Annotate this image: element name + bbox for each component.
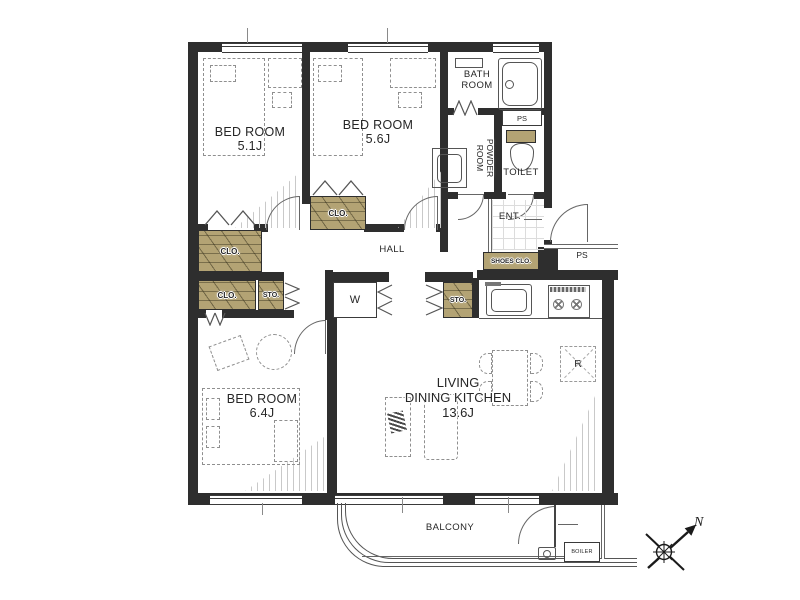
washer-space: W (333, 282, 377, 318)
stool (272, 92, 292, 108)
bifold-door-icon (425, 284, 443, 316)
entrance-tile-floor (492, 200, 544, 250)
desk (268, 58, 302, 88)
balcony-drain-box (538, 547, 556, 560)
room-label-powder: POWDER ROOM (466, 130, 494, 186)
wall (333, 272, 389, 282)
room-label-bedroom-large: BED ROOM 6.4J (212, 392, 312, 421)
wall (425, 272, 473, 282)
shoes-closet-label: SHOES CLO. (491, 258, 531, 265)
wall (494, 112, 502, 194)
bifold-door-icon (284, 282, 300, 310)
door-arc (458, 194, 484, 220)
compass-north-label: N (693, 515, 704, 530)
room-label-bath: BATH ROOM (456, 70, 498, 92)
washbasin (432, 148, 467, 188)
closet-box: CLO. (310, 196, 366, 230)
wall (325, 270, 333, 320)
boiler-label: BOILER (571, 549, 592, 555)
room-size: 6.4J (212, 406, 312, 420)
room-name: BED ROOM (200, 125, 300, 139)
bifold-door-icon (204, 312, 226, 326)
storage-box: STO. (443, 282, 473, 318)
burner-icon (553, 299, 564, 310)
balcony-partition (554, 505, 556, 547)
drain-circle (543, 550, 551, 558)
floor-plan: CLO. CLO. CLO. STO. STO. SHOES CLO. W (0, 0, 800, 600)
window (348, 43, 428, 53)
bath-counter (455, 58, 483, 68)
chair (479, 353, 492, 374)
closet-label: CLO. (220, 247, 239, 256)
bifold-door-icon (377, 284, 393, 316)
desk (390, 58, 436, 88)
room-size: 13.6J (382, 406, 534, 421)
door-arc (404, 196, 438, 230)
wall (196, 272, 284, 280)
boiler-box: BOILER (564, 542, 600, 562)
chair (530, 353, 543, 374)
wall (302, 52, 310, 204)
storage-box: STO. (258, 280, 284, 310)
closet-label: CLO. (217, 291, 236, 300)
corridor-edge-line (544, 244, 618, 249)
room-size: 5.1J (200, 139, 300, 153)
room-label-bedroom-small: BED ROOM 5.1J (200, 125, 300, 154)
room-label-toilet: TOILET (498, 168, 544, 179)
room-label-ldk: LIVING DINING KITCHEN 13.6J (382, 376, 534, 421)
bifold-door-icon (204, 210, 256, 226)
washbasin-bowl (437, 154, 462, 183)
stove (548, 285, 590, 318)
pillow (318, 65, 342, 82)
pillow (206, 426, 220, 448)
bifold-door-icon (312, 180, 364, 196)
room-label-balcony: BALCONY (416, 523, 484, 534)
door-arc (294, 320, 326, 354)
shoes-closet-box: SHOES CLO. (483, 252, 539, 270)
wall (364, 224, 404, 232)
stool (398, 92, 422, 108)
entrance-door-arc (550, 204, 588, 242)
bathtub (498, 58, 542, 110)
center-tick (387, 28, 388, 43)
closet-label: CLO. (328, 209, 347, 218)
closet-box: CLO. (198, 230, 262, 272)
wall (327, 318, 337, 493)
center-tick (262, 503, 263, 515)
wall (484, 192, 506, 199)
toilet-tank (506, 130, 536, 143)
room-name: ROOM (456, 81, 498, 92)
sink-basin (491, 289, 527, 312)
room-label-entrance: ENT. (490, 212, 530, 223)
refrigerator: R (560, 346, 596, 382)
room-name: POWDER (484, 130, 494, 186)
wall (440, 192, 458, 199)
kitchen-sink (486, 284, 532, 316)
hatch-shading (552, 385, 600, 491)
window (210, 495, 302, 505)
pipe-shaft-label: PS (517, 114, 527, 123)
storage-label: STO. (450, 297, 466, 304)
room-name: ROOM (474, 130, 484, 186)
room-name: BED ROOM (328, 118, 428, 132)
faucet (485, 282, 501, 286)
entrance-step-line (488, 199, 492, 252)
room-name: LIVING (382, 376, 534, 391)
partition-handle-line (558, 524, 578, 525)
window (493, 43, 539, 53)
wall (534, 192, 544, 199)
chair (209, 335, 250, 371)
washer-label: W (350, 294, 360, 306)
burner-icon (571, 299, 582, 310)
center-tick (247, 28, 248, 43)
storage-label: STO. (263, 292, 279, 299)
room-size: 5.6J (328, 132, 428, 146)
wall (222, 310, 294, 318)
wall (538, 247, 558, 272)
wall (544, 42, 552, 208)
wall (602, 270, 614, 505)
bathtub-drain (505, 80, 514, 89)
round-table (256, 334, 292, 370)
pillow (210, 65, 236, 82)
pipe-shaft-label: PS (566, 251, 598, 261)
room-label-bedroom-mid: BED ROOM 5.6J (328, 118, 428, 147)
folding-bath-door-icon (452, 100, 478, 116)
pipe-shaft-box: PS (502, 110, 542, 126)
closet-box: CLO. (198, 280, 256, 310)
bed-shelf (274, 420, 298, 462)
room-label-hall: HALL (370, 245, 414, 256)
room-name: BED ROOM (212, 392, 312, 406)
balcony-edge-line (601, 505, 605, 559)
window (222, 43, 302, 53)
room-name: DINING KITCHEN (382, 391, 534, 406)
stove-control-strip (550, 287, 586, 292)
compass-rose: N (632, 508, 712, 578)
